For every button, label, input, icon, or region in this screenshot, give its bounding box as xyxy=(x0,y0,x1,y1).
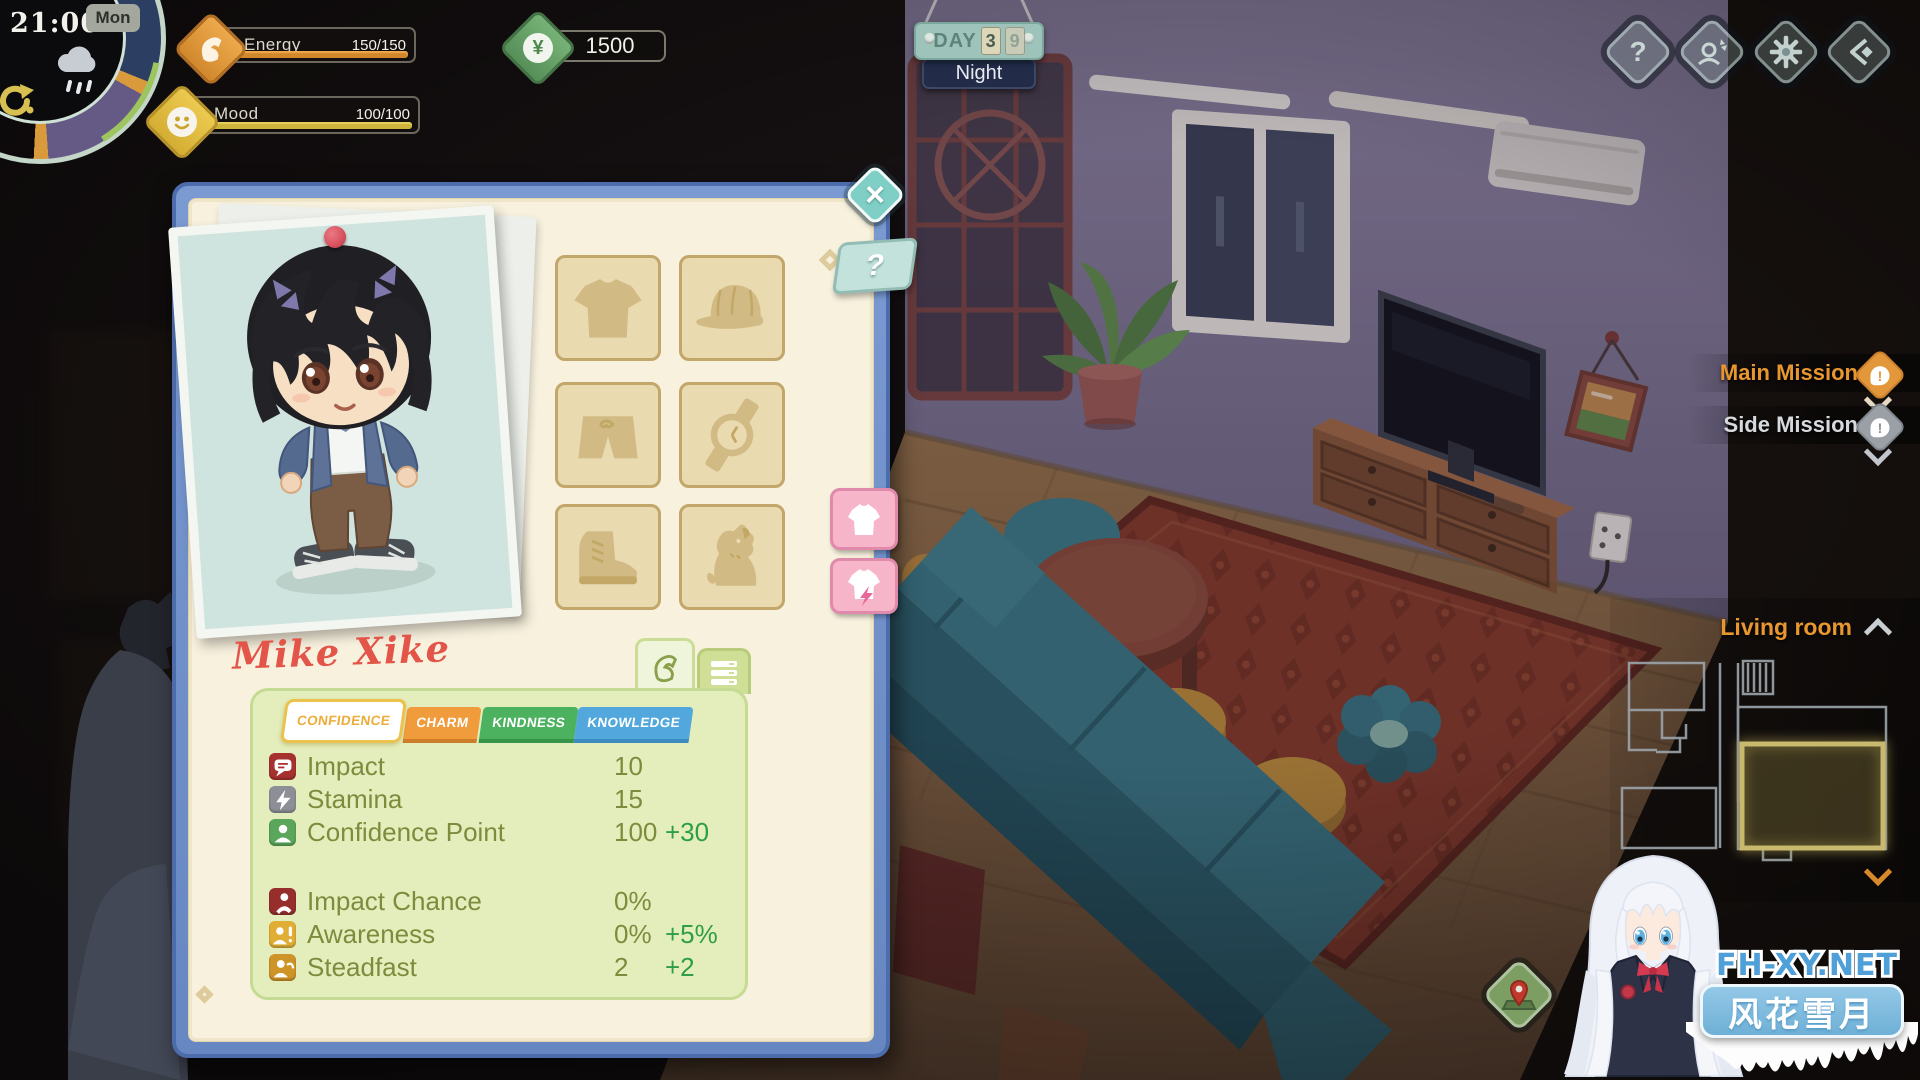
slot-shoes[interactable] xyxy=(555,504,661,610)
slot-pants[interactable] xyxy=(555,382,661,488)
settings-button[interactable] xyxy=(1754,20,1818,84)
tab-attributes[interactable] xyxy=(635,638,695,694)
weekday-tab: Mon xyxy=(86,4,140,32)
stat-row-impact: Impact 10 xyxy=(269,753,737,783)
album-button[interactable] xyxy=(1680,20,1744,84)
cap-icon xyxy=(691,267,773,349)
slot-hat[interactable] xyxy=(679,255,785,361)
slot-watch[interactable] xyxy=(679,382,785,488)
stat-label: Impact xyxy=(307,751,385,782)
chibi-character xyxy=(178,215,513,628)
stat-label: Impact Chance xyxy=(307,886,482,917)
money-value: 1500 xyxy=(586,33,635,59)
shirt-icon xyxy=(569,269,647,347)
stat-rows: Impact 10 Stamina 15 Confidenc xyxy=(269,747,737,991)
location-label: Living room xyxy=(1700,614,1852,641)
day-phase: Night xyxy=(922,58,1036,89)
impact-icon xyxy=(269,753,296,780)
map-pin-icon xyxy=(1488,964,1550,1026)
stat-value: 100 xyxy=(614,817,657,848)
tab-knowledge[interactable]: KNOWLEDGE xyxy=(574,707,694,743)
currency-symbol: ¥ xyxy=(532,37,543,60)
foreground-character-silhouette xyxy=(58,590,188,1080)
tshirt-icon xyxy=(844,499,884,539)
impact-chance-icon xyxy=(269,888,296,915)
watermark-brand-text: 风花雪月 xyxy=(1728,987,1876,1036)
stats-box: CONFIDENCE CHARM KINDNESS KNOWLEDGE Impa… xyxy=(250,688,748,1000)
tshirt-energy-icon xyxy=(844,566,884,606)
stat-row-awareness: Awareness 0% +5% xyxy=(269,921,737,951)
game-screen: 21:00 Mon Energy150/150 1500 ¥ Mood100/1… xyxy=(0,0,1920,1080)
stat-label: Stamina xyxy=(307,784,402,815)
alert-exclamation: ! xyxy=(1878,419,1883,435)
outfit-tab[interactable] xyxy=(830,488,898,550)
help-icon: ? xyxy=(1606,20,1670,84)
stat-label: Awareness xyxy=(307,919,435,950)
board-screw xyxy=(924,33,935,44)
character-panel: × ? Mike Xike CONFIDENCE CHAR xyxy=(172,182,890,1058)
awareness-icon xyxy=(269,921,296,948)
dog-icon xyxy=(692,517,772,597)
stamina-icon xyxy=(269,786,296,813)
stat-category-tabs: CONFIDENCE CHARM KINDNESS KNOWLEDGE xyxy=(283,699,692,743)
stat-label: Confidence Point xyxy=(307,817,505,848)
rain-weather-icon xyxy=(50,42,114,100)
stat-value: 2 xyxy=(614,952,628,983)
list-icon xyxy=(709,659,739,687)
close-icon: × xyxy=(848,168,902,222)
side-mission-label: Side Mission xyxy=(1724,412,1858,438)
watermark-site-text: FH-XY.NET xyxy=(1716,948,1898,983)
tab-confidence[interactable]: CONFIDENCE xyxy=(280,699,407,743)
stat-value: 15 xyxy=(614,784,643,815)
day-night-board: DAY 3 9 Night xyxy=(914,22,1044,89)
tab-kindness[interactable]: KINDNESS xyxy=(478,707,578,743)
close-button[interactable]: × xyxy=(848,168,902,222)
stat-value: 0% xyxy=(614,919,652,950)
day-label: DAY xyxy=(933,30,976,53)
stat-bonus: +30 xyxy=(665,817,709,848)
boot-icon xyxy=(568,517,648,597)
character-name: Mike Xike xyxy=(231,626,450,678)
watermark-site: FH-XY.NET xyxy=(1712,942,1920,988)
stat-row-impact-chance: Impact Chance 0% xyxy=(269,888,737,918)
slot-shirt[interactable] xyxy=(555,255,661,361)
day-digit: 3 xyxy=(981,27,1001,55)
slot-pet[interactable] xyxy=(679,504,785,610)
shorts-icon xyxy=(569,396,647,474)
panel-help-tag[interactable]: ? xyxy=(832,237,918,294)
photo-pin xyxy=(324,226,346,248)
gear-icon xyxy=(1754,20,1818,84)
stat-row-stamina: Stamina 15 xyxy=(269,786,737,816)
stat-bonus: +2 xyxy=(665,952,695,983)
day-digit-flipping: 9 xyxy=(1005,27,1025,55)
muscle-icon xyxy=(648,651,682,685)
question-icon: ? xyxy=(863,248,886,283)
mood-value: 100/100 xyxy=(356,106,410,123)
steadfast-icon xyxy=(269,954,296,981)
stat-row-confidence-point: Confidence Point 100 +30 xyxy=(269,819,737,849)
refresh-icon xyxy=(0,80,38,124)
album-icon xyxy=(1680,20,1744,84)
confidence-point-icon xyxy=(269,819,296,846)
help-button[interactable]: ? xyxy=(1606,20,1670,84)
watch-icon xyxy=(691,394,773,476)
main-mission-label: Main Mission xyxy=(1720,360,1858,386)
stat-row-steadfast: Steadfast 2 +2 xyxy=(269,954,737,984)
stat-value: 0% xyxy=(614,886,652,917)
minimap-floorplan[interactable] xyxy=(1620,652,1900,868)
stat-bonus: +5% xyxy=(665,919,718,950)
quick-outfit-tab[interactable] xyxy=(830,558,898,614)
character-portrait xyxy=(168,205,522,639)
exit-icon xyxy=(1827,20,1891,84)
mood-label: Mood xyxy=(214,104,259,124)
map-button[interactable] xyxy=(1488,964,1550,1026)
alert-exclamation: ! xyxy=(1878,367,1883,383)
watermark-banner: 风花雪月 xyxy=(1700,984,1904,1038)
tab-charm[interactable]: CHARM xyxy=(403,707,482,743)
exit-button[interactable] xyxy=(1827,20,1891,84)
stat-value: 10 xyxy=(614,751,643,782)
stat-label: Steadfast xyxy=(307,952,417,983)
